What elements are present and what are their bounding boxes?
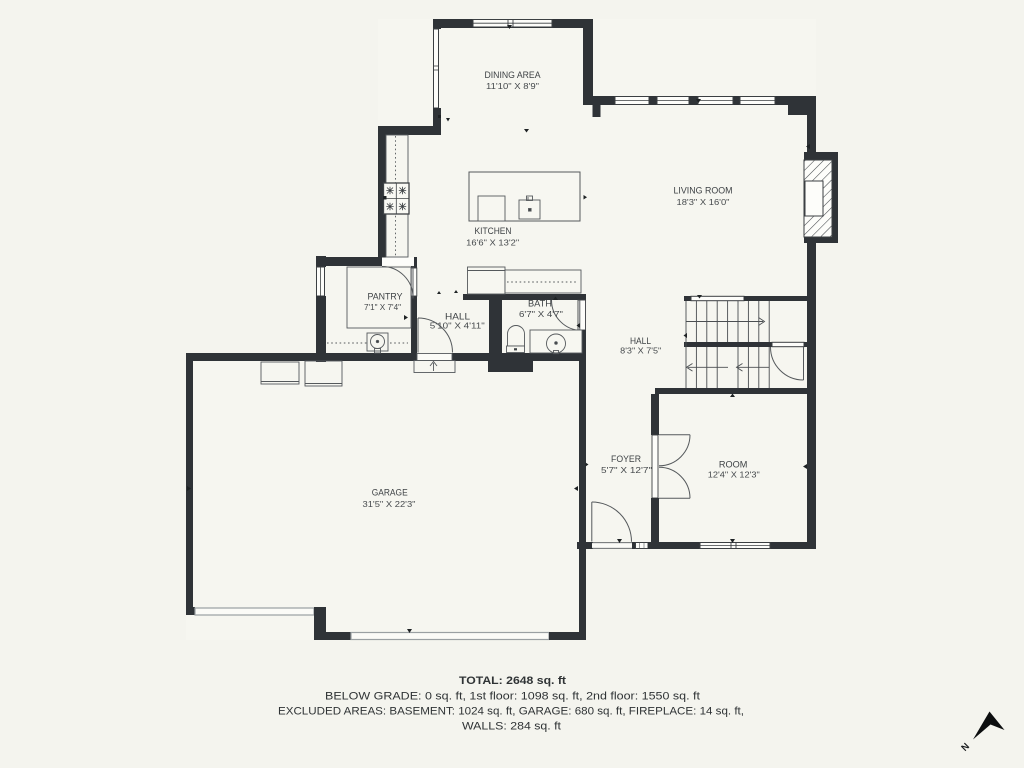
svg-text:16'6" X 13'2": 16'6" X 13'2" xyxy=(466,238,519,248)
svg-text:5'7" X 12'7": 5'7" X 12'7" xyxy=(601,466,652,475)
svg-text:GARAGE: GARAGE xyxy=(372,487,408,498)
svg-text:WALLS: 284 sq. ft: WALLS: 284 sq. ft xyxy=(462,720,562,732)
svg-text:HALL: HALL xyxy=(445,312,470,322)
svg-text:ROOM: ROOM xyxy=(719,460,748,470)
svg-text:HALL: HALL xyxy=(630,336,651,346)
svg-text:12'4" X 12'3": 12'4" X 12'3" xyxy=(708,471,760,480)
svg-text:11'10" X 8'9": 11'10" X 8'9" xyxy=(486,81,539,91)
svg-text:LIVING ROOM: LIVING ROOM xyxy=(674,185,733,196)
svg-text:DINING AREA: DINING AREA xyxy=(485,69,542,80)
svg-text:N: N xyxy=(959,741,972,754)
svg-text:31'5" X 22'3": 31'5" X 22'3" xyxy=(363,499,416,509)
svg-text:BELOW GRADE: 0 sq. ft, 1st flo: BELOW GRADE: 0 sq. ft, 1st floor: 1098 s… xyxy=(325,690,701,702)
svg-text:6'7" X 4'7": 6'7" X 4'7" xyxy=(519,310,563,319)
svg-text:18'3" X 16'0": 18'3" X 16'0" xyxy=(677,197,730,207)
svg-text:BATH: BATH xyxy=(528,299,552,309)
svg-text:5'10" X 4'11": 5'10" X 4'11" xyxy=(430,322,485,331)
svg-text:TOTAL: 2648 sq. ft: TOTAL: 2648 sq. ft xyxy=(459,675,566,687)
svg-text:EXCLUDED AREAS: BASEMENT: 1024: EXCLUDED AREAS: BASEMENT: 1024 sq. ft, G… xyxy=(278,705,744,717)
svg-text:7'1" X 7'4": 7'1" X 7'4" xyxy=(364,303,401,312)
svg-text:KITCHEN: KITCHEN xyxy=(475,225,512,236)
svg-text:PANTRY: PANTRY xyxy=(368,292,403,302)
svg-text:FOYER: FOYER xyxy=(611,454,641,464)
svg-text:8'3" X 7'5": 8'3" X 7'5" xyxy=(620,347,661,356)
